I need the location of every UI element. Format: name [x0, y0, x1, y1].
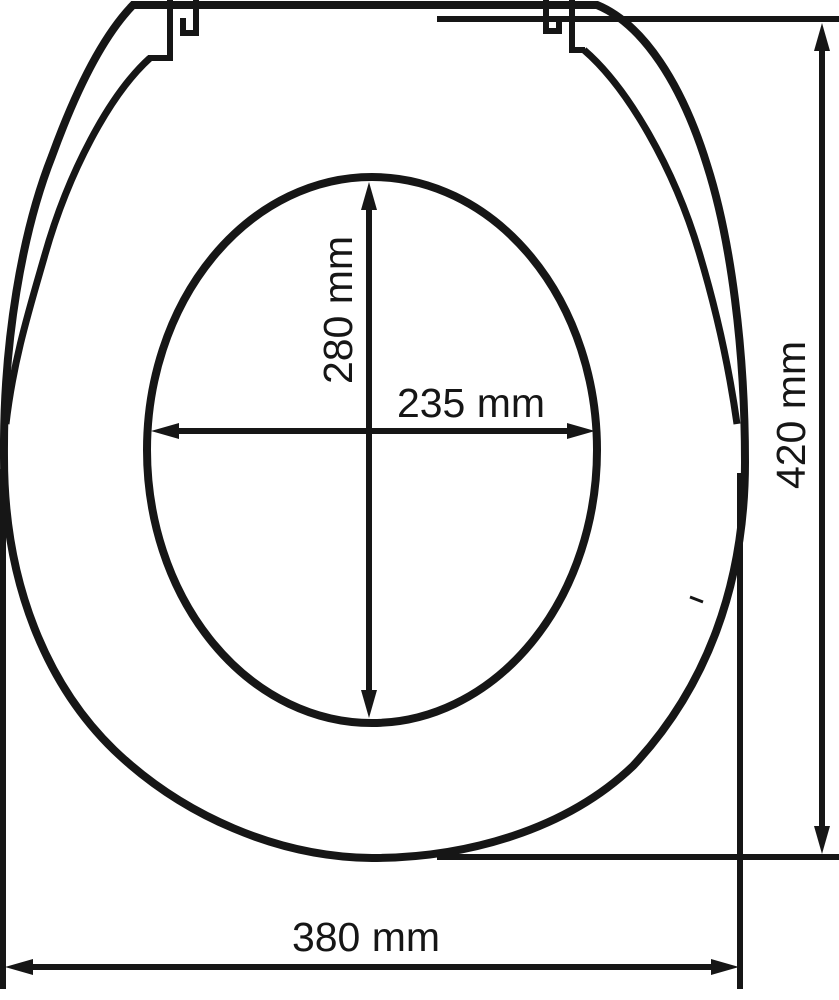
dimension-diagram: 280 mm 235 mm 420 mm 380 mm	[0, 0, 839, 1000]
dimension-inner-width: 235 mm	[151, 380, 595, 439]
seat-seam-curve-right	[584, 50, 737, 424]
dimension-inner-length-arrow-up	[361, 182, 377, 210]
stray-mark	[690, 597, 703, 602]
dimension-overall-width-arrow-left	[5, 959, 33, 975]
toilet-seat-dimension-drawing: 280 mm 235 mm 420 mm 380 mm	[0, 0, 839, 1000]
dimension-inner-width-arrow-left	[151, 423, 179, 439]
label-overall-length: 420 mm	[768, 341, 814, 489]
dimension-overall-length: 420 mm	[437, 19, 839, 857]
label-overall-width: 380 mm	[292, 914, 440, 960]
dimension-inner-length: 280 mm	[315, 182, 377, 718]
dimension-overall-length-arrow-up	[814, 23, 830, 51]
dimension-inner-width-arrow-right	[567, 423, 595, 439]
label-inner-width: 235 mm	[397, 380, 545, 426]
dimension-overall-length-arrow-down	[814, 826, 830, 854]
dimension-overall-width-arrow-right	[711, 959, 739, 975]
dimension-inner-length-arrow-down	[361, 690, 377, 718]
label-inner-length: 280 mm	[315, 236, 361, 384]
